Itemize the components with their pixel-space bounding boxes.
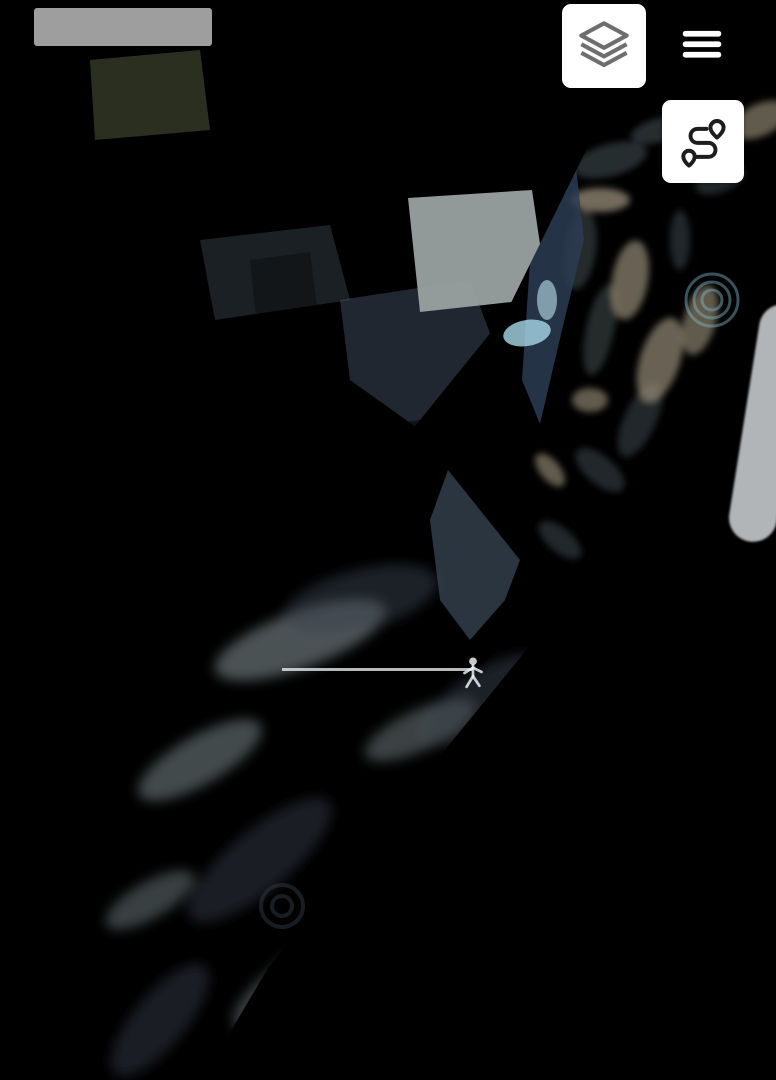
menu-button[interactable] <box>662 4 742 84</box>
map-canvas[interactable] <box>0 0 776 1080</box>
hamburger-menu-icon <box>674 16 730 72</box>
route-button[interactable] <box>662 100 744 183</box>
layers-icon <box>575 17 633 75</box>
layers-button[interactable] <box>562 4 646 88</box>
scale-bar <box>34 8 212 46</box>
map-view <box>0 0 776 1080</box>
route-icon <box>675 114 731 170</box>
scale-bar-bracket <box>40 13 206 42</box>
shallow-water-patch <box>537 280 557 320</box>
